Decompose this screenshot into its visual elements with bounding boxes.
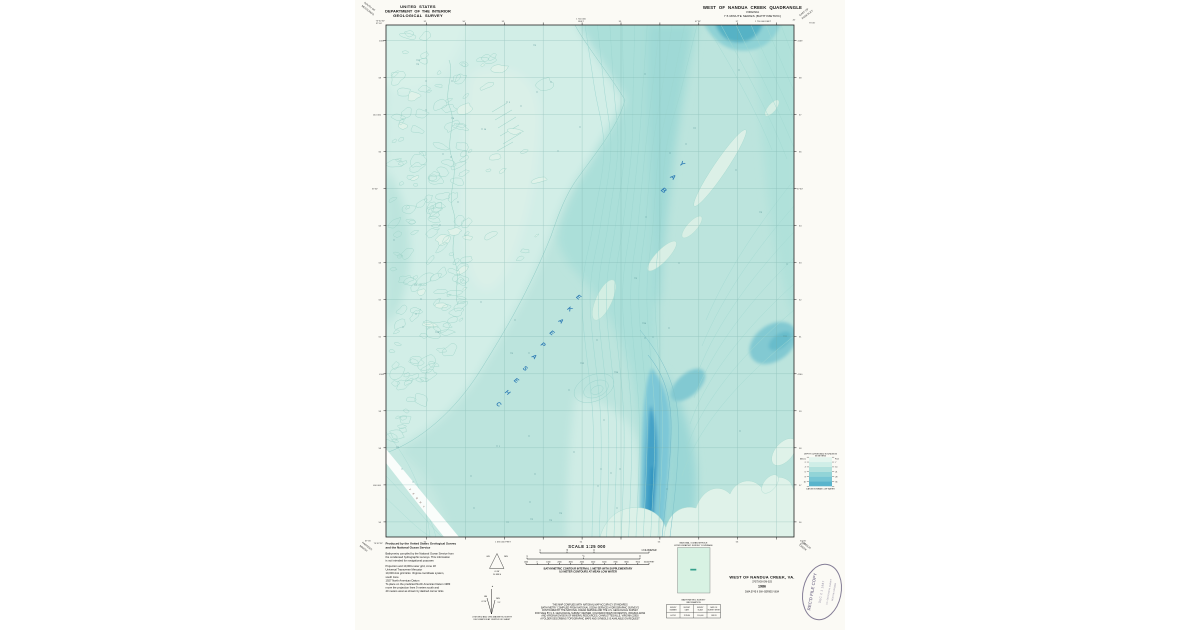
svg-text:DECLINATION AT CENTER OF SHEET: DECLINATION AT CENTER OF SHEET xyxy=(474,618,512,621)
svg-text:75°45': 75°45' xyxy=(809,23,816,25)
svg-text:1 KILOMETER: 1 KILOMETER xyxy=(641,550,657,552)
svg-text:75°52'30": 75°52'30" xyxy=(374,543,384,545)
svg-text:DATUM IS MEAN LOW WATER: DATUM IS MEAN LOW WATER xyxy=(806,487,835,490)
svg-text:GEOLOGICAL SURVEY: GEOLOGICAL SURVEY xyxy=(393,13,443,18)
svg-text:4000: 4000 xyxy=(580,562,584,564)
svg-text:MN: MN xyxy=(504,556,508,558)
svg-text:BATHYMETRY COMPILED FROM NATIO: BATHYMETRY COMPILED FROM NATIONAL OCEAN … xyxy=(541,606,639,609)
svg-text:40 meters west as shown by das: 40 meters west as shown by dashed corner… xyxy=(386,589,445,593)
svg-text:7000: 7000 xyxy=(613,562,617,564)
svg-text:11: 11 xyxy=(418,60,420,62)
svg-text:INFORMATION: INFORMATION xyxy=(686,601,701,604)
svg-text:12: 12 xyxy=(582,363,584,365)
svg-text:2: 2 xyxy=(532,519,533,521)
svg-text:3000: 3000 xyxy=(569,562,573,564)
svg-text:SCALE 1:25 000: SCALE 1:25 000 xyxy=(568,544,606,549)
svg-text:47'30": 47'30" xyxy=(695,21,701,23)
svg-text:400 000: 400 000 xyxy=(373,485,382,487)
svg-text:1927 North American Datum: 1927 North American Datum xyxy=(386,578,421,582)
svg-text:410 000: 410 000 xyxy=(373,114,382,116)
svg-text:south zone: south zone xyxy=(386,575,400,579)
svg-text:To place on the predicted Nort: To place on the predicted North American… xyxy=(386,582,451,586)
svg-text:FOR SALE BY U.S. GEOLOGICAL SU: FOR SALE BY U.S. GEOLOGICAL SURVEY, DENV… xyxy=(535,612,646,615)
svg-text:14 MILS: 14 MILS xyxy=(493,574,502,576)
svg-text:37°35': 37°35' xyxy=(365,541,372,543)
svg-text:7: 7 xyxy=(695,128,696,130)
svg-text:GN: GN xyxy=(486,556,490,558)
svg-text:5: 5 xyxy=(636,278,637,280)
svg-text:0°46': 0°46' xyxy=(495,571,501,573)
svg-text:FEET: FEET xyxy=(578,21,584,23)
svg-text:6000: 6000 xyxy=(602,562,606,564)
svg-text:the condensed hydrographic sur: the condensed hydrographic surveys. This… xyxy=(386,555,451,559)
svg-text:SURVEY: SURVEY xyxy=(684,607,691,609)
svg-text:10: 10 xyxy=(484,129,486,131)
svg-text:SURVEY: SURVEY xyxy=(697,607,704,609)
svg-text:37'30": 37'30" xyxy=(372,189,378,191)
svg-text:SURVEY SHEET: SURVEY SHEET xyxy=(708,609,720,611)
svg-text:75°52'30": 75°52'30" xyxy=(376,20,386,22)
svg-text:Feet: Feet xyxy=(835,458,839,461)
svg-text:WEST OF NANDUA CREEK, VA.: WEST OF NANDUA CREEK, VA. xyxy=(729,574,794,579)
svg-text:HYDROGRAPHIC SURVEY COVERAGE: HYDROGRAPHIC SURVEY COVERAGE xyxy=(674,544,713,547)
svg-text:10: 10 xyxy=(644,323,646,325)
svg-text:5000: 5000 xyxy=(591,562,595,564)
svg-text:Projection and 10,000-meter gr: Projection and 10,000-meter grid, zone 1… xyxy=(386,564,437,568)
svg-text:1978-80: 1978-80 xyxy=(684,615,690,617)
svg-text:NUMBER: NUMBER xyxy=(670,609,678,611)
svg-text:5: 5 xyxy=(398,447,399,449)
svg-text:1000: 1000 xyxy=(546,562,550,564)
svg-text:11°: 11° xyxy=(497,602,500,604)
svg-text:4169: 4169 xyxy=(798,40,804,42)
svg-text:37'30": 37'30" xyxy=(797,189,803,191)
svg-text:5: 5 xyxy=(509,102,510,104)
svg-text:0.5 METER CONTOURS AT MEAN LOW: 0.5 METER CONTOURS AT MEAN LOW WATER xyxy=(559,570,617,574)
svg-text:7.5 MINUTE SERIES (BATHYMETRIC: 7.5 MINUTE SERIES (BATHYMETRIC) xyxy=(724,14,781,18)
svg-text:5: 5 xyxy=(535,45,536,47)
svg-text:MN: MN xyxy=(496,598,500,600)
svg-text:0: 0 xyxy=(537,562,538,564)
svg-text:10000 FEET: 10000 FEET xyxy=(644,562,655,564)
svg-text:JUN 81: JUN 81 xyxy=(711,615,717,617)
svg-text:1 750 000 FEET: 1 750 000 FEET xyxy=(755,21,772,23)
svg-text:4160: 4160 xyxy=(798,374,804,376)
svg-text:37°40': 37°40' xyxy=(376,23,383,25)
svg-text:CONTOURED BY THE NATIONAL OCEA: CONTOURED BY THE NATIONAL OCEAN SERVICE … xyxy=(542,609,639,612)
svg-text:2000: 2000 xyxy=(557,562,561,564)
svg-text:1 690 000 FEET: 1 690 000 FEET xyxy=(495,542,512,544)
svg-text:move the projection lines 9 me: move the projection lines 9 meters south… xyxy=(386,586,440,590)
svg-text:7: 7 xyxy=(508,522,509,524)
svg-text:Bathymetry compiled by the Nat: Bathymetry compiled by the National Ocea… xyxy=(386,551,455,555)
svg-text:37°35': 37°35' xyxy=(800,541,807,543)
svg-text:AND VIRGINIA DIVISION OF MINER: AND VIRGINIA DIVISION OF MINERAL RESOURC… xyxy=(541,615,639,618)
svg-text:4: 4 xyxy=(453,118,454,120)
svg-text:9000: 9000 xyxy=(636,562,640,564)
svg-text:1:10,000: 1:10,000 xyxy=(697,615,704,617)
svg-text:11: 11 xyxy=(785,336,787,338)
svg-text:8000: 8000 xyxy=(624,562,628,564)
svg-text:is not intended for navigation: is not intended for navigational purpose… xyxy=(386,559,435,563)
svg-text:A FOLDER DESCRIBING TOPOGRAPHI: A FOLDER DESCRIBING TOPOGRAPHIC MAPS AND… xyxy=(540,618,640,621)
svg-text:3: 3 xyxy=(418,64,419,66)
svg-text:0°20': 0°20' xyxy=(482,601,488,603)
svg-text:10,000-foot grid ticks: Virgin: 10,000-foot grid ticks: Virginia coordin… xyxy=(386,571,445,575)
svg-text:DMA 5745 II SW–SERIES V834: DMA 5745 II SW–SERIES V834 xyxy=(745,591,780,594)
svg-text:1986: 1986 xyxy=(758,585,766,589)
svg-text:SURVEY: SURVEY xyxy=(670,607,677,609)
svg-text:4169: 4169 xyxy=(379,40,385,42)
svg-text:H-9741: H-9741 xyxy=(670,615,676,617)
svg-text:3: 3 xyxy=(761,212,762,214)
svg-text:75°45': 75°45' xyxy=(800,544,807,546)
svg-text:Universal Transverse Mercator: Universal Transverse Mercator xyxy=(386,568,423,572)
svg-text:GN: GN xyxy=(484,596,488,598)
svg-text:37075-E8-OM-025: 37075-E8-OM-025 xyxy=(752,580,772,583)
svg-text:7: 7 xyxy=(416,285,417,287)
svg-text:10: 10 xyxy=(437,332,439,334)
svg-text:5: 5 xyxy=(512,353,513,355)
svg-text:4160: 4160 xyxy=(379,374,385,376)
svg-text:Meters: Meters xyxy=(800,458,806,461)
svg-text:★: ★ xyxy=(492,585,494,588)
svg-text:and the National Ocean Service: and the National Ocean Service xyxy=(386,545,431,549)
svg-text:1000: 1000 xyxy=(524,562,528,564)
svg-text:9: 9 xyxy=(561,513,562,515)
svg-text:THIS MAP COMPLIES WITH NATIONA: THIS MAP COMPLIES WITH NATIONAL MAP ACCU… xyxy=(552,604,628,607)
